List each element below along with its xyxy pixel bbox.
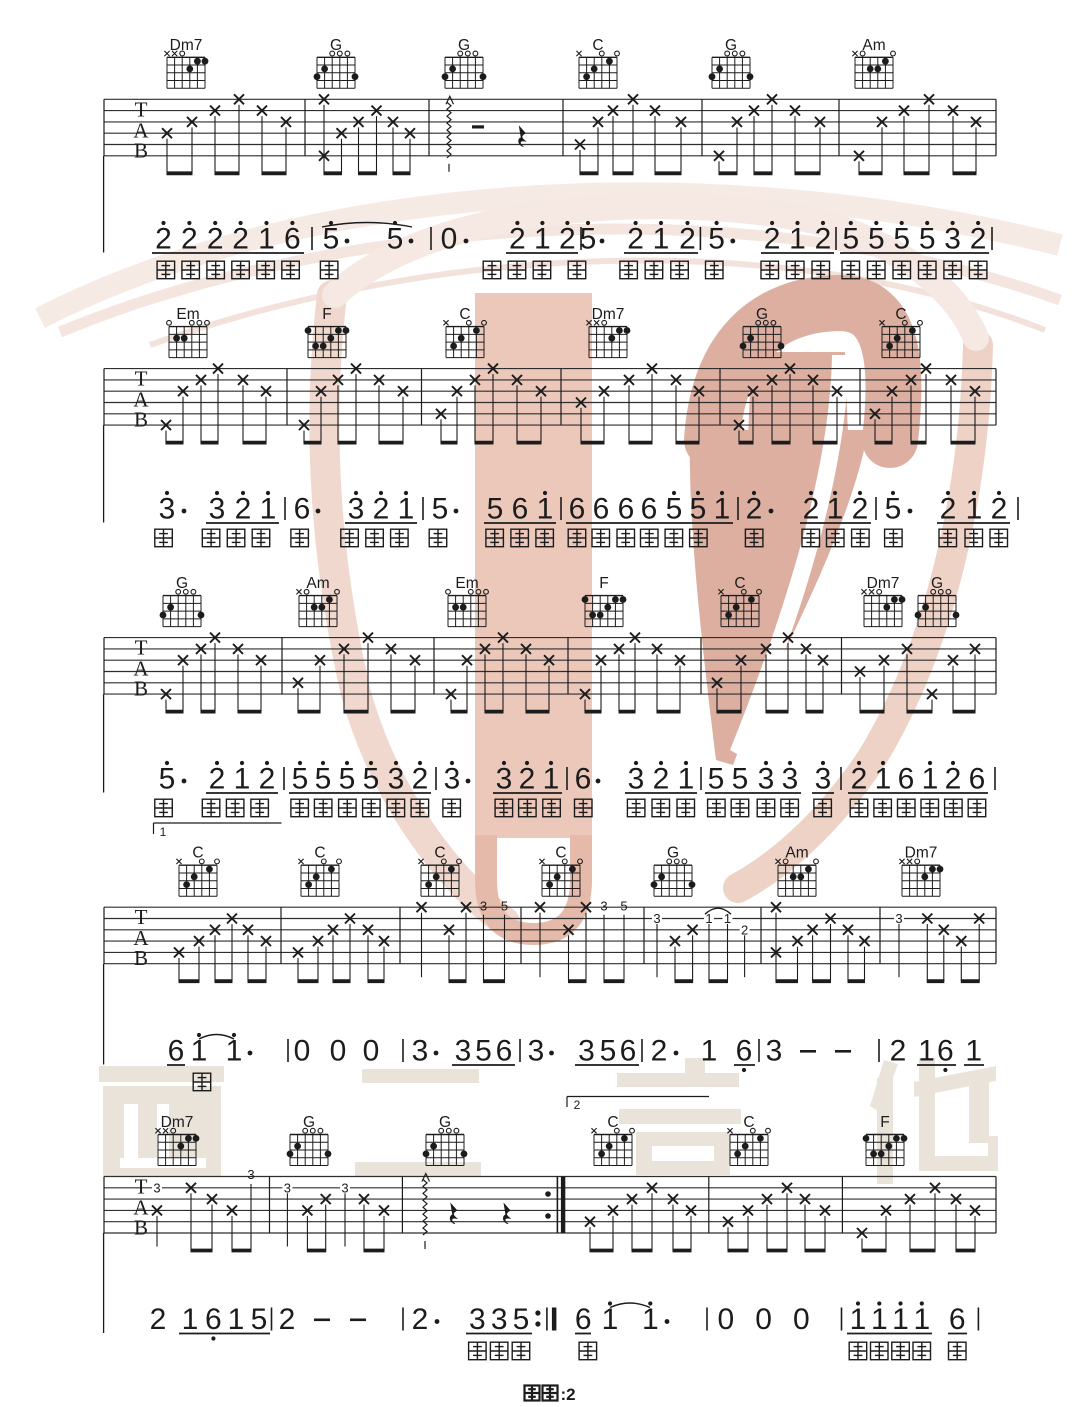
svg-text:2: 2 [412, 763, 429, 796]
svg-text:3: 3 [895, 911, 902, 926]
svg-text:5: 5 [620, 899, 627, 914]
svg-text:3: 3 [444, 763, 461, 796]
svg-text:3: 3 [944, 223, 961, 256]
svg-text:1: 1 [260, 493, 277, 526]
svg-text:3: 3 [209, 493, 226, 526]
svg-text:0: 0 [294, 1035, 311, 1068]
svg-text:5: 5 [708, 763, 725, 796]
svg-text:3: 3 [766, 1035, 783, 1068]
svg-text:0: 0 [441, 223, 458, 256]
svg-text:2: 2 [373, 493, 390, 526]
svg-text:2: 2 [679, 223, 696, 256]
svg-text:5: 5 [387, 223, 404, 256]
svg-text:3: 3 [653, 911, 660, 926]
svg-text:Em: Em [455, 575, 478, 592]
svg-text:6: 6 [205, 1303, 222, 1336]
svg-text:B: B [134, 1216, 148, 1240]
svg-text:1: 1 [918, 1035, 935, 1068]
svg-text:2: 2 [574, 1098, 581, 1112]
svg-text:2: 2 [150, 1303, 167, 1336]
svg-text:5: 5 [842, 223, 859, 256]
svg-text:Dm7: Dm7 [592, 306, 625, 323]
svg-text:5: 5 [339, 763, 356, 796]
svg-text:5: 5 [315, 763, 332, 796]
svg-text:2: 2 [991, 493, 1008, 526]
svg-text:5: 5 [690, 493, 707, 526]
svg-text:6: 6 [284, 223, 301, 256]
svg-text:F: F [599, 575, 608, 592]
svg-text:2: 2 [519, 763, 536, 796]
svg-text:6: 6 [512, 493, 529, 526]
svg-text:2: 2 [412, 1303, 429, 1336]
svg-text:0: 0 [793, 1303, 810, 1336]
svg-text:B: B [134, 677, 148, 701]
svg-text:2: 2 [653, 763, 670, 796]
svg-text:1: 1 [537, 493, 554, 526]
svg-text:Dm7: Dm7 [170, 37, 203, 54]
svg-text:2: 2 [945, 763, 962, 796]
svg-text:2: 2 [235, 493, 252, 526]
svg-text:5: 5 [292, 763, 309, 796]
svg-text:5: 5 [919, 223, 936, 256]
svg-text:3: 3 [159, 493, 176, 526]
svg-text:1: 1 [182, 1303, 199, 1336]
svg-text:6: 6 [496, 1035, 513, 1068]
svg-text:1: 1 [827, 493, 844, 526]
svg-text:1: 1 [922, 763, 939, 796]
svg-text:6: 6 [618, 493, 635, 526]
svg-text:5: 5 [600, 1035, 617, 1068]
svg-text:5: 5 [475, 1035, 492, 1068]
svg-text:3: 3 [628, 763, 645, 796]
svg-text:3: 3 [348, 493, 365, 526]
svg-text:2: 2 [970, 223, 987, 256]
svg-text:3: 3 [600, 899, 607, 914]
svg-text:5: 5 [513, 1303, 530, 1336]
svg-text:1: 1 [871, 1303, 888, 1336]
svg-text:3: 3 [247, 1167, 254, 1182]
svg-text:5: 5 [868, 223, 885, 256]
svg-text:6: 6 [575, 763, 592, 796]
svg-text:5: 5 [487, 493, 504, 526]
svg-text:3: 3 [284, 1180, 291, 1195]
svg-text:3: 3 [758, 763, 775, 796]
svg-text:3: 3 [496, 763, 513, 796]
svg-text:B: B [134, 408, 148, 432]
svg-text:2: 2 [803, 493, 820, 526]
svg-text:6: 6 [736, 1035, 753, 1068]
svg-text:3: 3 [388, 763, 405, 796]
svg-text:3: 3 [782, 763, 799, 796]
svg-text:5: 5 [251, 1303, 268, 1336]
svg-text:2: 2 [559, 223, 576, 256]
svg-text:2: 2 [651, 1035, 668, 1068]
svg-text:2: 2 [259, 763, 276, 796]
svg-text:5: 5 [580, 223, 597, 256]
svg-text:1: 1 [160, 825, 167, 839]
svg-text:1: 1 [228, 1303, 245, 1336]
svg-text:5: 5 [885, 493, 902, 526]
svg-text:3: 3 [153, 1180, 160, 1195]
svg-text:1: 1 [966, 493, 983, 526]
svg-text:1: 1 [258, 223, 275, 256]
svg-text:5: 5 [363, 763, 380, 796]
svg-text:2: 2 [890, 1035, 907, 1068]
svg-text:3: 3 [578, 1035, 595, 1068]
svg-text:3: 3 [815, 763, 832, 796]
svg-text:3: 3 [341, 1180, 348, 1195]
svg-text:1: 1 [913, 1303, 930, 1336]
svg-text:3: 3 [491, 1303, 508, 1336]
svg-text:1: 1 [714, 493, 731, 526]
svg-text:F: F [322, 306, 331, 323]
svg-text:Dm7: Dm7 [867, 575, 900, 592]
svg-text:2: 2 [207, 223, 224, 256]
svg-text:0: 0 [755, 1303, 772, 1336]
svg-text:1: 1 [234, 763, 251, 796]
svg-text:1: 1 [789, 223, 806, 256]
svg-text:6: 6 [168, 1035, 185, 1068]
svg-text:2: 2 [940, 493, 957, 526]
svg-text:B: B [134, 946, 148, 970]
svg-text:6: 6 [898, 763, 915, 796]
svg-text:3: 3 [412, 1035, 429, 1068]
svg-text:2: 2 [741, 922, 748, 937]
svg-text:2: 2 [815, 223, 832, 256]
svg-text:1: 1 [191, 1035, 208, 1068]
svg-text:1: 1 [965, 1035, 982, 1068]
svg-text:5: 5 [501, 899, 508, 914]
svg-text:6: 6 [937, 1035, 954, 1068]
svg-text:0: 0 [363, 1035, 380, 1068]
svg-text:5: 5 [893, 223, 910, 256]
svg-text:5: 5 [159, 763, 176, 796]
svg-text:3: 3 [480, 899, 487, 914]
svg-text:6: 6 [593, 493, 610, 526]
svg-text:1: 1 [543, 763, 560, 796]
svg-text:3: 3 [528, 1035, 545, 1068]
svg-text:5: 5 [666, 493, 683, 526]
svg-text:0: 0 [717, 1303, 734, 1336]
svg-text:Dm7: Dm7 [905, 845, 938, 862]
svg-text:3: 3 [469, 1303, 486, 1336]
svg-text:2: 2 [155, 223, 172, 256]
svg-text:2: 2 [279, 1303, 296, 1336]
svg-text:Am: Am [306, 575, 329, 592]
svg-text:2: 2 [627, 223, 644, 256]
svg-text:6: 6 [620, 1035, 637, 1068]
svg-text:0: 0 [330, 1035, 347, 1068]
svg-text:5: 5 [432, 493, 449, 526]
svg-text:6: 6 [641, 493, 658, 526]
svg-text:5: 5 [323, 223, 340, 256]
svg-text:1: 1 [642, 1303, 659, 1336]
svg-text:6: 6 [569, 493, 586, 526]
svg-text:Am: Am [862, 37, 885, 54]
svg-text:1: 1 [892, 1303, 909, 1336]
svg-text:1: 1 [701, 1035, 718, 1068]
svg-text:1: 1 [602, 1303, 619, 1336]
svg-text:B: B [134, 138, 148, 162]
svg-text:1: 1 [398, 493, 415, 526]
svg-text:F: F [880, 1114, 889, 1131]
svg-text:1: 1 [653, 223, 670, 256]
svg-text:2: 2 [852, 493, 869, 526]
svg-text:2: 2 [746, 493, 763, 526]
svg-text:2: 2 [181, 223, 198, 256]
svg-text:2: 2 [509, 223, 526, 256]
svg-text:6: 6 [949, 1303, 966, 1336]
svg-text:2: 2 [764, 223, 781, 256]
svg-text:6: 6 [575, 1303, 592, 1336]
svg-text:Dm7: Dm7 [161, 1114, 194, 1131]
svg-text:Am: Am [785, 845, 808, 862]
svg-text:2: 2 [851, 763, 868, 796]
svg-text:Em: Em [176, 306, 199, 323]
svg-text:1: 1 [226, 1035, 243, 1068]
svg-text:1: 1 [534, 223, 551, 256]
svg-text:5: 5 [708, 223, 725, 256]
svg-text:1: 1 [875, 763, 892, 796]
svg-text:6: 6 [969, 763, 986, 796]
svg-text:2: 2 [209, 763, 226, 796]
svg-text:2: 2 [232, 223, 249, 256]
svg-text:5: 5 [732, 763, 749, 796]
svg-text:1: 1 [678, 763, 695, 796]
svg-text::2: :2 [560, 1385, 575, 1404]
svg-text:3: 3 [455, 1035, 472, 1068]
svg-text:6: 6 [294, 493, 311, 526]
svg-text:1: 1 [850, 1303, 867, 1336]
